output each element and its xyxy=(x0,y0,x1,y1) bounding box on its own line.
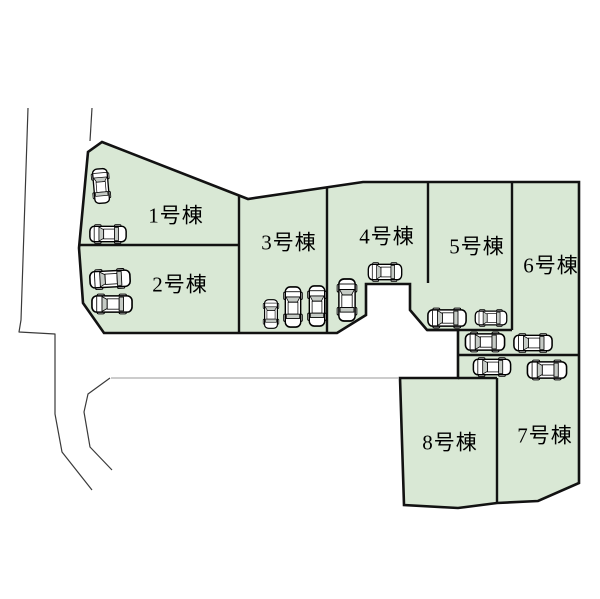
car-icon xyxy=(89,268,130,290)
car-icon xyxy=(368,263,401,282)
car-icon xyxy=(308,286,327,326)
car-icon xyxy=(475,310,507,327)
car-icon xyxy=(90,225,126,244)
car-icon xyxy=(263,300,279,329)
lot-7-label: 7号棟 xyxy=(517,426,573,447)
car-icon xyxy=(428,308,466,328)
car-icon xyxy=(473,358,510,377)
road-edge-top-stub xyxy=(90,108,92,141)
site-plan-canvas xyxy=(0,0,600,599)
site-plan: 1号棟 2号棟 3号棟 4号棟 5号棟 6号棟 7号棟 8号棟 xyxy=(0,0,600,599)
lot-3-label: 3号棟 xyxy=(261,233,317,254)
car-icon xyxy=(92,294,132,314)
lot-4-label: 4号棟 xyxy=(359,227,415,248)
car-icon xyxy=(527,360,566,380)
lot-8-label: 8号棟 xyxy=(422,433,478,454)
lot-6-label: 6号棟 xyxy=(523,256,579,277)
lot-1-label: 1号棟 xyxy=(148,206,204,227)
road-edge-inner xyxy=(84,378,112,470)
car-icon xyxy=(284,287,303,327)
road-edge-left xyxy=(19,108,92,490)
car-icon xyxy=(465,332,504,352)
lot-2-label: 2号棟 xyxy=(152,275,208,296)
lot-5-label: 5号棟 xyxy=(449,237,505,258)
car-icon xyxy=(91,168,112,204)
car-icon xyxy=(514,334,552,353)
car-icon xyxy=(337,279,357,321)
